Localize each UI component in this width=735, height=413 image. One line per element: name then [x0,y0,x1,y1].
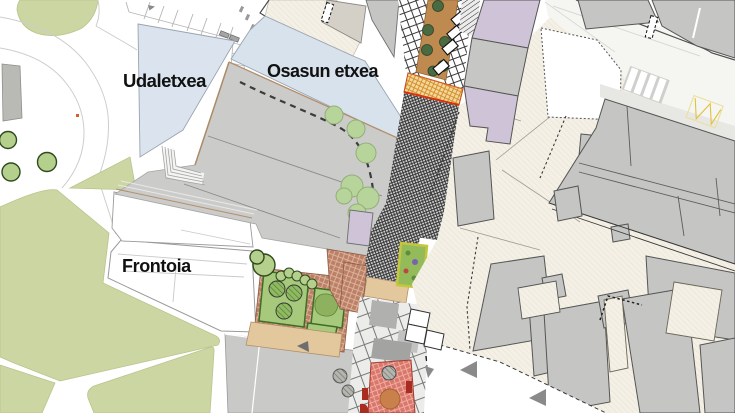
svg-text:Udaletxea: Udaletxea [123,70,207,91]
svg-text:Osasun etxea: Osasun etxea [267,61,380,81]
svg-text:Frontoia: Frontoia [122,256,192,276]
